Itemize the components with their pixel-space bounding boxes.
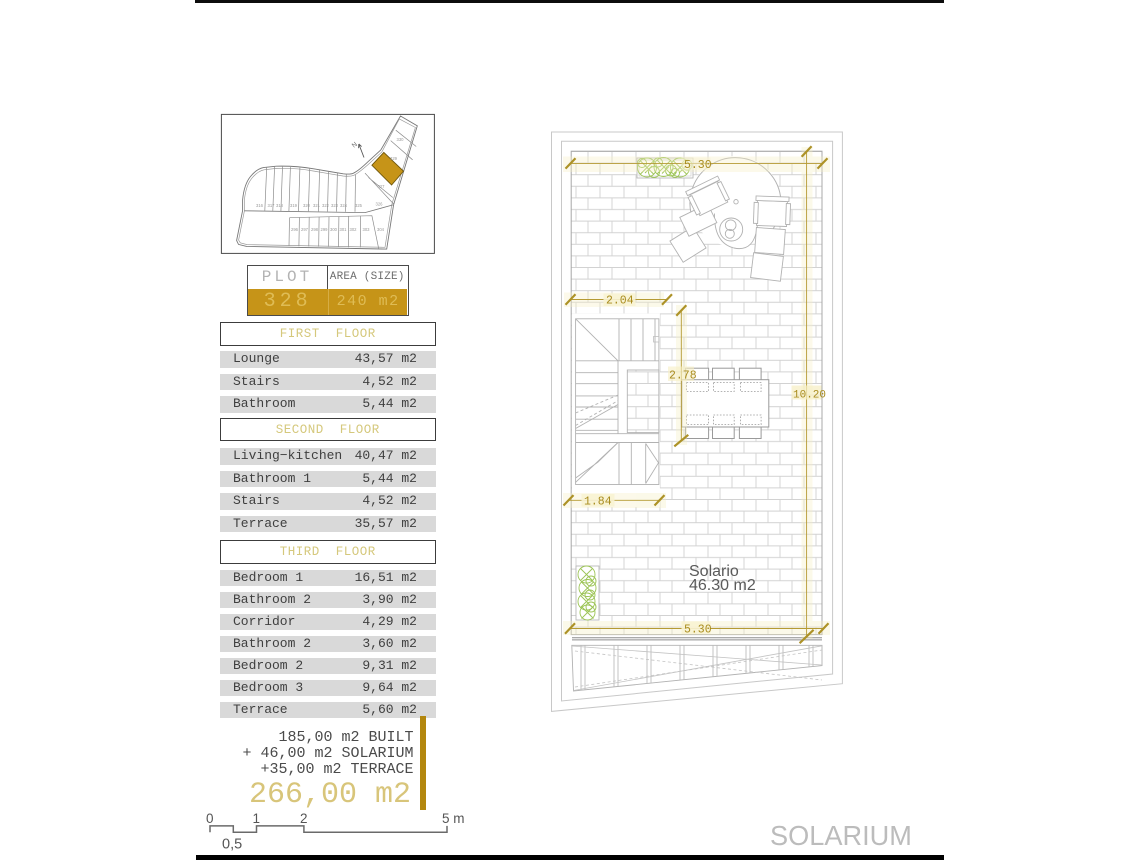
svg-text:319: 319 bbox=[290, 203, 298, 208]
svg-text:0,5: 0,5 bbox=[222, 837, 242, 853]
svg-text:316: 316 bbox=[256, 203, 264, 208]
svg-text:325: 325 bbox=[355, 203, 363, 208]
svg-text:2.04: 2.04 bbox=[606, 295, 634, 308]
svg-text:5.30: 5.30 bbox=[684, 623, 712, 636]
svg-text:317: 317 bbox=[268, 203, 276, 208]
svg-text:46.30 m2: 46.30 m2 bbox=[689, 577, 756, 594]
svg-text:297: 297 bbox=[301, 227, 309, 232]
svg-text:1.84: 1.84 bbox=[584, 496, 612, 509]
svg-text:320: 320 bbox=[303, 203, 311, 208]
svg-text:304: 304 bbox=[377, 227, 385, 232]
svg-text:322: 322 bbox=[322, 203, 330, 208]
svg-text:329: 329 bbox=[390, 156, 398, 161]
svg-text:2: 2 bbox=[300, 811, 308, 826]
svg-text:321: 321 bbox=[313, 203, 321, 208]
svg-text:323: 323 bbox=[331, 203, 339, 208]
svg-text:5 m: 5 m bbox=[442, 811, 465, 826]
svg-text:2.78: 2.78 bbox=[669, 370, 697, 383]
svg-text:301: 301 bbox=[340, 227, 348, 232]
svg-text:302: 302 bbox=[350, 227, 358, 232]
svg-text:324: 324 bbox=[340, 203, 348, 208]
svg-text:298: 298 bbox=[311, 227, 319, 232]
svg-text:326: 326 bbox=[376, 202, 384, 207]
svg-text:327: 327 bbox=[378, 184, 386, 189]
svg-text:330: 330 bbox=[397, 137, 405, 142]
svg-text:299: 299 bbox=[321, 227, 329, 232]
svg-text:0: 0 bbox=[206, 811, 214, 826]
svg-text:318: 318 bbox=[276, 203, 284, 208]
svg-text:296: 296 bbox=[291, 227, 299, 232]
svg-text:1: 1 bbox=[253, 811, 261, 826]
svg-text:300: 300 bbox=[330, 227, 338, 232]
svg-text:5.30: 5.30 bbox=[684, 159, 712, 172]
svg-text:303: 303 bbox=[363, 227, 371, 232]
svg-text:10.20: 10.20 bbox=[793, 390, 826, 402]
